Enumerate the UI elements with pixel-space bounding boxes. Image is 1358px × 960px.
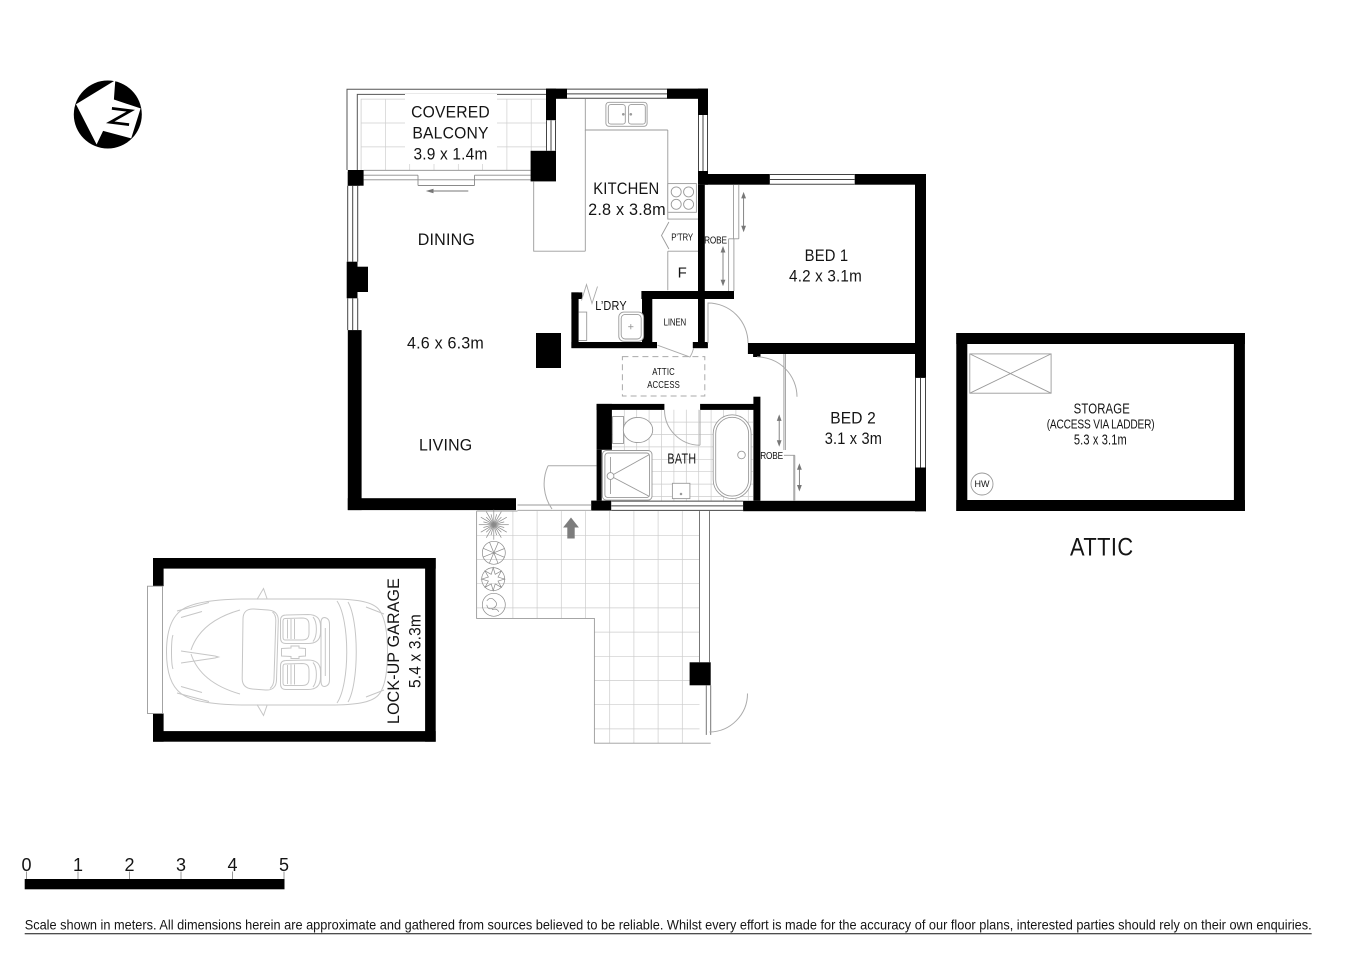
svg-text:ATTIC: ATTIC <box>1070 534 1134 562</box>
svg-text:(ACCESS VIA LADDER): (ACCESS VIA LADDER) <box>1047 418 1155 432</box>
svg-text:4.6 x 6.3m: 4.6 x 6.3m <box>407 335 484 353</box>
svg-text:0: 0 <box>21 855 31 875</box>
svg-text:ROBE: ROBE <box>760 451 783 462</box>
svg-text:BED 2: BED 2 <box>830 410 876 428</box>
svg-text:BATH: BATH <box>667 451 696 468</box>
svg-text:5.4 x 3.3m: 5.4 x 3.3m <box>407 614 425 688</box>
svg-text:STORAGE: STORAGE <box>1074 401 1130 418</box>
svg-text:2.8 x 3.8m: 2.8 x 3.8m <box>588 201 666 219</box>
svg-text:ACCESS: ACCESS <box>647 380 680 391</box>
svg-text:1: 1 <box>73 855 83 875</box>
svg-text:COVERED: COVERED <box>411 104 490 122</box>
svg-text:4.2 x 3.1m: 4.2 x 3.1m <box>789 268 862 286</box>
svg-text:P’TRY: P’TRY <box>671 233 693 244</box>
svg-text:KITCHEN: KITCHEN <box>593 180 659 198</box>
svg-text:L’DRY: L’DRY <box>595 299 627 313</box>
svg-text:HW: HW <box>975 479 990 489</box>
svg-text:BALCONY: BALCONY <box>412 125 488 143</box>
svg-text:Scale shown in meters. All dim: Scale shown in meters. All dimensions he… <box>25 918 1312 933</box>
svg-text:2: 2 <box>124 855 134 875</box>
svg-text:3: 3 <box>176 855 186 875</box>
svg-text:LINEN: LINEN <box>664 318 686 329</box>
svg-text:BED 1: BED 1 <box>805 247 849 265</box>
svg-text:LOCK-UP GARAGE: LOCK-UP GARAGE <box>385 578 403 724</box>
svg-text:5: 5 <box>279 855 289 875</box>
svg-text:ATTIC: ATTIC <box>652 367 675 378</box>
svg-text:LIVING: LIVING <box>419 437 472 455</box>
svg-text:F: F <box>678 265 688 282</box>
svg-text:4: 4 <box>227 855 237 875</box>
svg-text:3.1 x 3m: 3.1 x 3m <box>825 430 882 448</box>
svg-text:5.3 x 3.1m: 5.3 x 3.1m <box>1074 432 1127 449</box>
svg-text:DINING: DINING <box>418 231 475 249</box>
svg-text:ROBE: ROBE <box>704 235 727 246</box>
svg-text:3.9 x 1.4m: 3.9 x 1.4m <box>413 145 487 163</box>
